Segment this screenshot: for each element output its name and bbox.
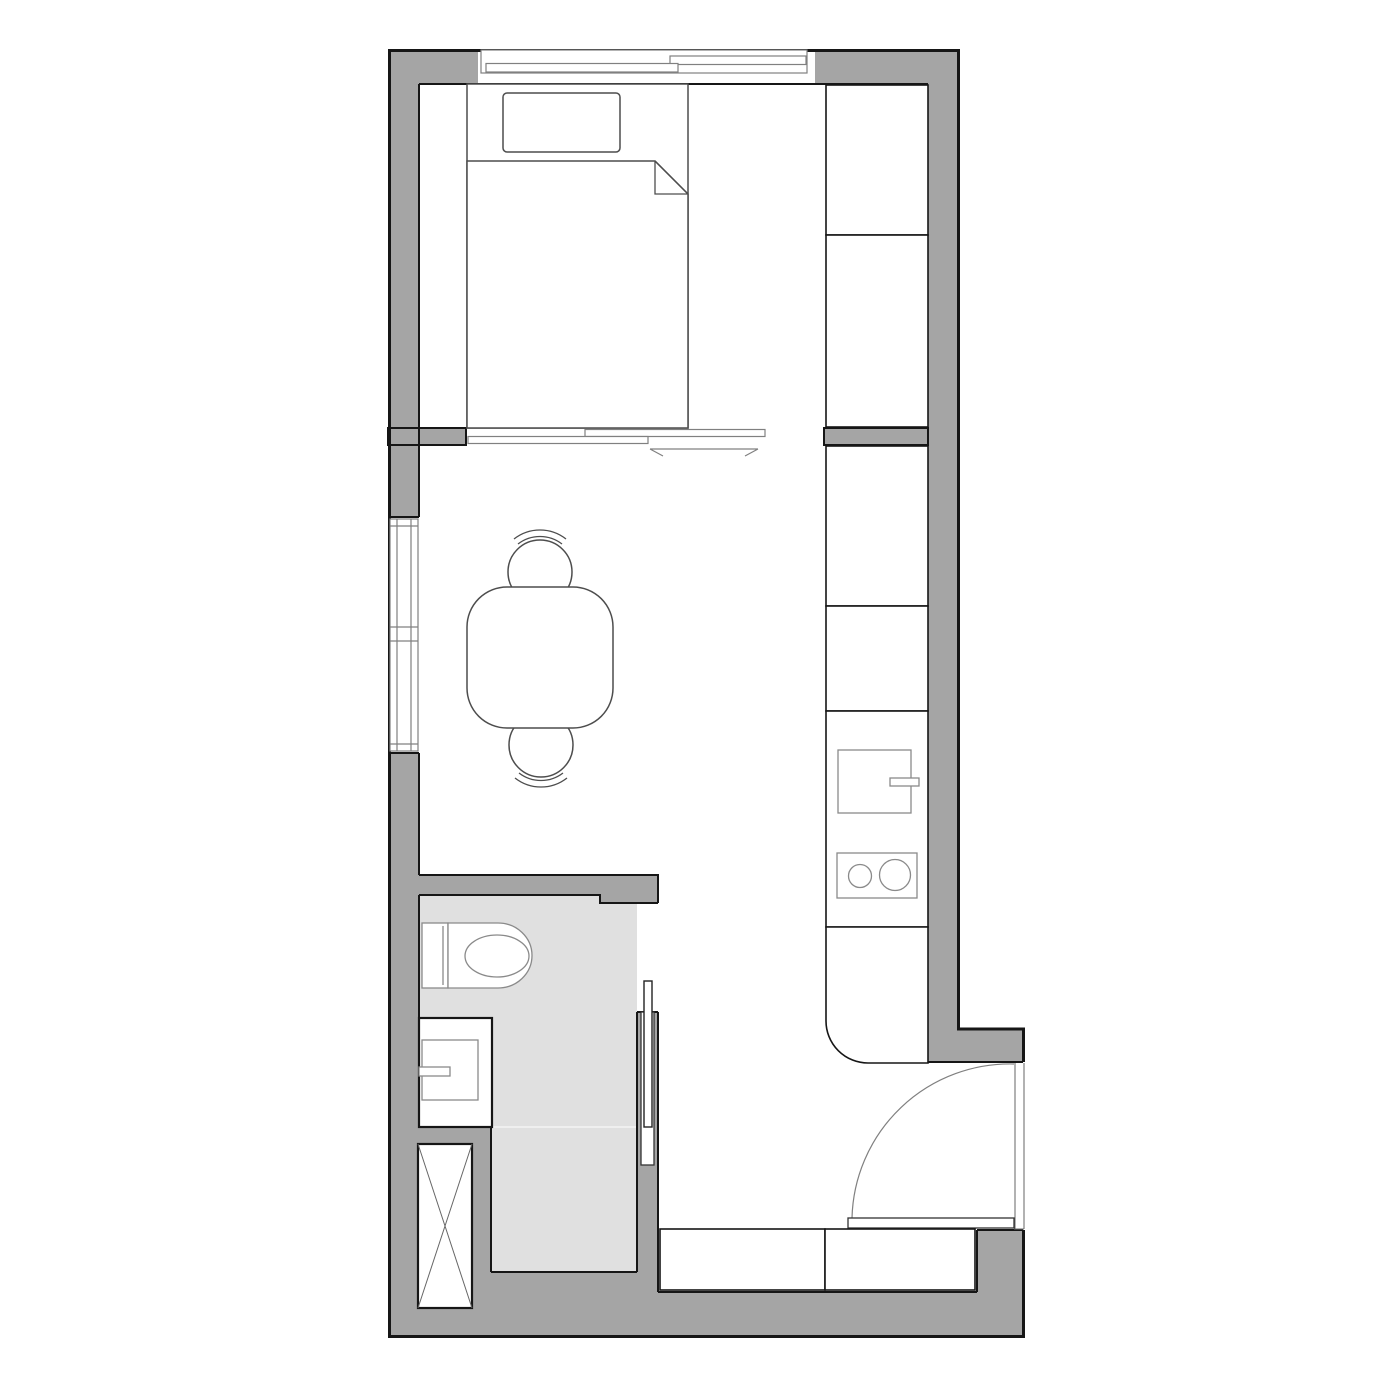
wardrobe: [826, 85, 928, 427]
toilet-bowl: [448, 923, 532, 988]
dining-set: [467, 530, 613, 787]
wall-right: [928, 84, 960, 1062]
rounded-counter-end: [826, 927, 928, 1063]
wall-partition-stub-left: [388, 428, 466, 445]
balcony-window-panel-right: [670, 56, 806, 65]
entry-door-leaf: [848, 1218, 1014, 1228]
balcony-sliding-window: [481, 50, 807, 73]
wardrobe-section-top: [826, 85, 928, 235]
wall-bathroom-door-jamb: [600, 875, 658, 903]
kitchen-tall-unit: [826, 446, 928, 606]
bed: [467, 84, 688, 428]
side-window: [390, 519, 418, 751]
service-shaft: [418, 1144, 472, 1308]
floor-plan-svg: [0, 0, 1400, 1400]
washbasin-faucet: [419, 1067, 450, 1076]
wall-left-lower: [388, 753, 419, 1338]
entry-door-frame: [1014, 1063, 1024, 1229]
entry-cabinets: [660, 1229, 975, 1290]
balcony-window-panel-left: [486, 64, 678, 73]
wardrobe-section-bottom: [826, 235, 928, 427]
entry-door: [848, 1063, 1024, 1229]
entry-cabinet-left: [660, 1229, 825, 1290]
wall-partition-stub-right: [824, 428, 928, 445]
pocket-door-leaf: [644, 981, 652, 1127]
kitchen-faucet: [890, 778, 919, 786]
sliding-partition: [468, 430, 765, 457]
kitchen-run: [826, 446, 928, 1063]
dining-table: [467, 587, 613, 728]
duvet: [467, 161, 688, 428]
slide-direction-arrow: [650, 449, 758, 456]
wall-top-right-block: [815, 49, 960, 84]
partition-panel-right: [585, 430, 765, 437]
pillow: [503, 93, 620, 152]
wall-bottom-band: [658, 1292, 1025, 1338]
entry-cabinet-right: [825, 1229, 975, 1290]
floor-plan-canvas: [0, 0, 1400, 1400]
toilet-tank: [422, 923, 448, 988]
side-window-frame: [390, 519, 418, 751]
entry-door-swing-arc: [852, 1064, 1014, 1218]
wall-left-upper: [388, 84, 419, 517]
pocket-sliding-door: [641, 981, 654, 1165]
partition-panel-left: [468, 437, 648, 444]
wall-top-left-block: [388, 49, 478, 84]
kitchen-cabinet: [826, 606, 928, 711]
wall-right-step: [928, 1030, 1025, 1062]
